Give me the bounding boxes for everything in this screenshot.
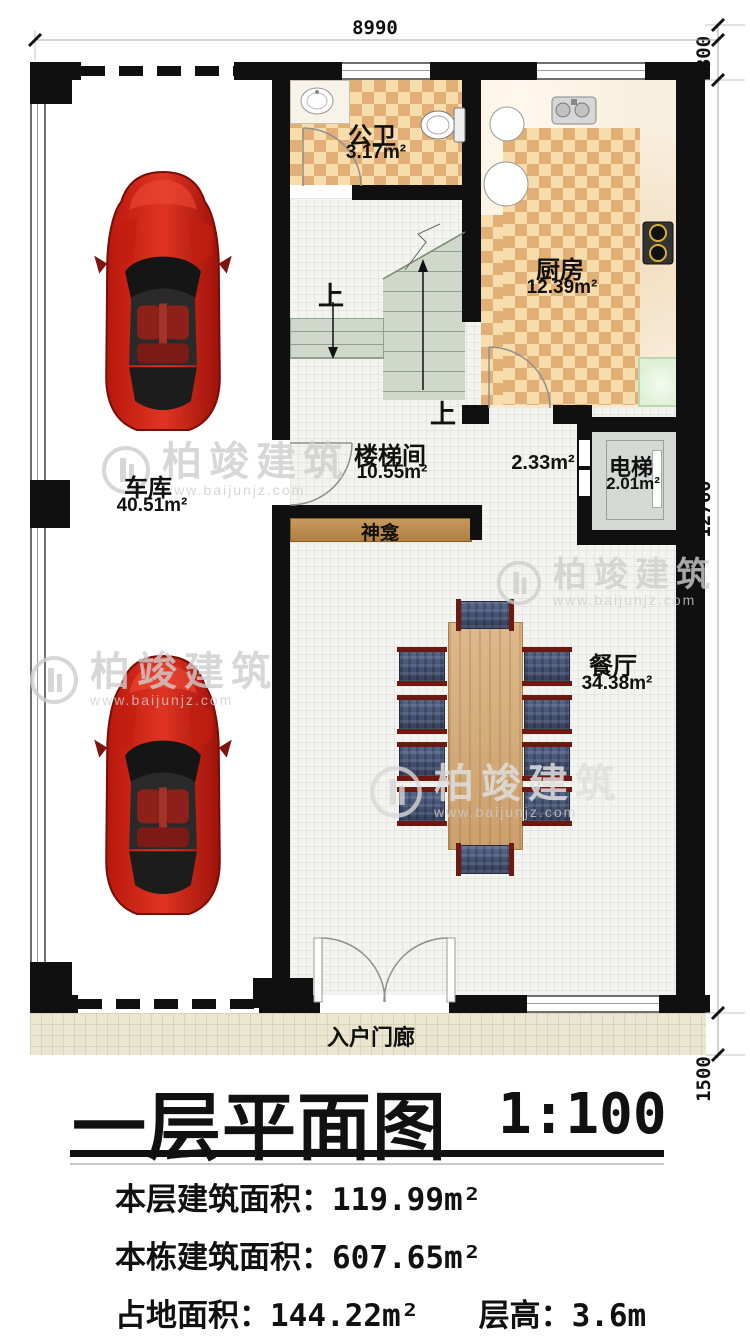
dining-chair: [399, 744, 445, 779]
dimension-right-porch: 1500: [693, 1049, 715, 1109]
stat-building-area: 本栋建筑面积：607.65m²: [115, 1232, 481, 1277]
stat-building-area-value: 607.65m²: [332, 1240, 481, 1276]
wall-pier: [30, 480, 70, 528]
window: [342, 62, 430, 80]
dining-table: [448, 622, 523, 850]
dining-chair: [399, 649, 445, 684]
stair-up-label: 上: [430, 394, 456, 431]
dining-chair: [399, 789, 445, 824]
stair-up-label: 上: [318, 276, 344, 313]
hallway-area: 2.33m²: [511, 452, 574, 475]
floor-plan-page: 柏竣建筑 www.baijunjz.com 柏竣建筑 www.baijunjz.…: [0, 0, 750, 1336]
stat-land-area: 占地面积：144.22m² 层高：3.6m: [115, 1290, 646, 1335]
window: [30, 528, 46, 962]
stairwell-area: 10.55m²: [357, 462, 428, 484]
corner-column: [30, 962, 72, 1013]
garage-door-bottom: [78, 999, 259, 1009]
dining-chair: [399, 697, 445, 732]
wall-bath-kitchen: [462, 80, 481, 322]
elevator-door-gap: [579, 440, 590, 466]
window: [537, 62, 645, 80]
wall-kitchen-bottom: [462, 405, 489, 424]
wall: [430, 62, 537, 80]
dining-area: 34.38m²: [582, 673, 653, 695]
elevator-area: 2.01m²: [606, 474, 660, 494]
wall: [676, 62, 705, 1013]
bathroom-area: 3.17m²: [346, 142, 406, 164]
wall-shrine-post: [470, 505, 482, 540]
stat-floor-area-label: 本层建筑面积：: [115, 1182, 332, 1217]
window: [30, 104, 46, 480]
elevator-door-gap: [579, 470, 590, 496]
kitchen-area: 12.39m²: [527, 277, 598, 299]
garage-floor: [46, 80, 272, 995]
window: [527, 995, 659, 1013]
stat-floor-area: 本层建筑面积：119.99m²: [115, 1174, 481, 1219]
stat-height-value: 3.6m: [572, 1298, 647, 1334]
elevator-shaft-wall: [592, 417, 676, 432]
wall: [234, 62, 342, 80]
wall-shrine: [272, 505, 482, 518]
stat-building-area-label: 本栋建筑面积：: [115, 1240, 332, 1275]
dining-chair: [458, 601, 512, 629]
plan-title: 一层平面图: [72, 1068, 447, 1175]
wall-bath-bottom: [352, 185, 462, 200]
title-underline: [70, 1150, 664, 1157]
stat-floor-area-value: 119.99m²: [332, 1182, 481, 1218]
stat-land-area-value: 144.22m²: [270, 1298, 419, 1334]
shrine-label: 神龛: [361, 518, 399, 545]
stair-flight-lower: [290, 318, 384, 359]
dining-chair: [458, 845, 512, 874]
wall-garage-divider: [272, 80, 290, 440]
corner-column: [30, 62, 72, 104]
dining-chair: [524, 744, 570, 779]
dining-chair: [524, 649, 570, 684]
stat-height-label: 层高：: [479, 1298, 572, 1333]
kitchen-floor-lower-left: [481, 215, 503, 405]
porch-label: 入户门廊: [327, 1020, 415, 1052]
wall-garage-divider: [272, 507, 290, 995]
wall-pier: [253, 978, 313, 1008]
dining-chair: [524, 697, 570, 732]
kitchen-mat: [638, 357, 680, 407]
stat-land-area-label: 占地面积：: [115, 1298, 270, 1333]
title-underline-thin: [70, 1163, 664, 1165]
elevator-shaft-wall: [577, 530, 676, 545]
dining-chair: [524, 789, 570, 824]
garage-door-top: [81, 66, 234, 76]
wall: [449, 995, 527, 1013]
garage-area: 40.51m²: [117, 495, 188, 517]
dimension-top-width: 8990: [340, 17, 410, 39]
plan-scale: 1:100: [498, 1082, 667, 1147]
bathroom-sink-counter: [290, 80, 350, 124]
